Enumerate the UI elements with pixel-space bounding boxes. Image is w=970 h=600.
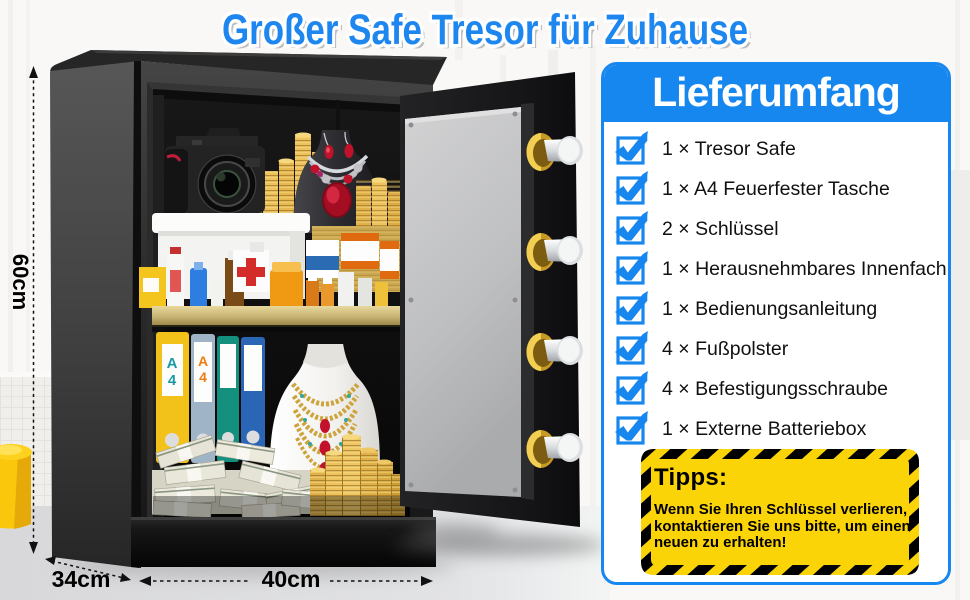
- svg-text:Großer Safe Tresor für Zuhause: Großer Safe Tresor für Zuhause: [222, 6, 748, 54]
- svg-text:4: 4: [168, 372, 177, 389]
- svg-text:A: A: [167, 355, 178, 372]
- svg-text:A: A: [198, 353, 208, 369]
- svg-text:60cm: 60cm: [8, 254, 33, 310]
- svg-text:34cm: 34cm: [52, 566, 111, 592]
- svg-text:4: 4: [199, 369, 207, 385]
- svg-text:40cm: 40cm: [262, 566, 321, 592]
